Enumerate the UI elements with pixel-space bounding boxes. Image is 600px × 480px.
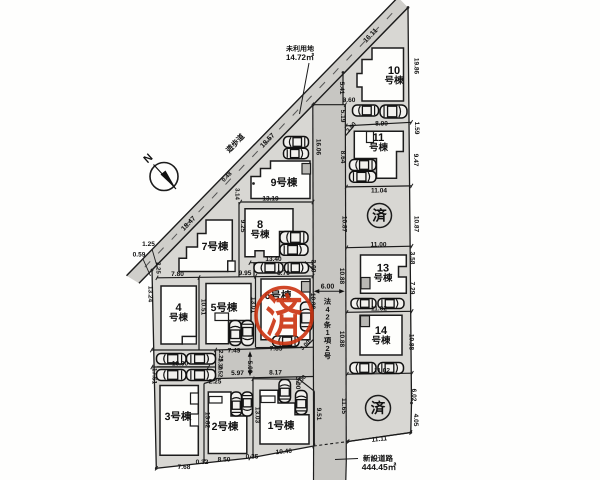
svg-text:9.95: 9.95 [239, 270, 252, 277]
svg-text:5.00: 5.00 [246, 361, 253, 374]
svg-text:10.51: 10.51 [200, 299, 207, 316]
svg-text:7.29: 7.29 [409, 282, 416, 295]
svg-text:7.68: 7.68 [178, 464, 191, 471]
svg-text:9.25: 9.25 [239, 220, 246, 233]
svg-text:1.59: 1.59 [413, 122, 420, 135]
svg-text:16.06: 16.06 [315, 139, 322, 156]
svg-text:7号棟: 7号棟 [202, 240, 229, 253]
svg-text:号棟: 号棟 [371, 335, 391, 347]
svg-text:8.90: 8.90 [375, 121, 388, 128]
svg-text:1号棟: 1号棟 [268, 419, 295, 432]
svg-text:号棟: 号棟 [373, 272, 393, 284]
svg-text:号棟: 号棟 [369, 142, 389, 154]
svg-text:13.82: 13.82 [204, 412, 211, 429]
svg-text:6.02: 6.02 [410, 389, 417, 402]
svg-text:3.00: 3.00 [310, 260, 317, 273]
svg-text:10.88: 10.88 [338, 268, 345, 285]
svg-text:2.25: 2.25 [155, 262, 162, 274]
svg-text:0.35: 0.35 [246, 454, 259, 461]
svg-text:13.40: 13.40 [265, 256, 282, 263]
svg-text:号棟: 号棟 [169, 312, 189, 324]
svg-text:9.47: 9.47 [412, 154, 419, 167]
svg-text:1.25: 1.25 [142, 241, 155, 248]
svg-text:14.72㎡: 14.72㎡ [286, 52, 314, 62]
svg-text:9号棟: 9号棟 [271, 176, 298, 189]
svg-text:13.19: 13.19 [262, 196, 279, 203]
svg-text:10.88: 10.88 [338, 331, 345, 348]
svg-text:0.32: 0.32 [196, 459, 209, 466]
svg-text:13.24: 13.24 [147, 286, 154, 303]
svg-text:11.65: 11.65 [340, 398, 347, 414]
svg-text:3号棟: 3号棟 [165, 410, 192, 423]
svg-text:済: 済 [266, 291, 304, 343]
svg-text:8.70: 8.70 [277, 270, 290, 277]
svg-text:2号棟: 2号棟 [212, 420, 239, 433]
svg-text:済: 済 [372, 208, 387, 225]
svg-text:5号棟: 5号棟 [211, 301, 238, 314]
svg-text:10.87: 10.87 [341, 216, 348, 233]
svg-text:10.88: 10.88 [408, 334, 415, 351]
svg-text:7.49: 7.49 [228, 348, 241, 355]
svg-text:10.87: 10.87 [413, 216, 420, 233]
svg-text:8.50: 8.50 [218, 457, 231, 464]
svg-text:10.40: 10.40 [275, 448, 292, 456]
svg-text:4.05: 4.05 [412, 414, 419, 427]
svg-text:444.45㎡: 444.45㎡ [362, 462, 397, 472]
svg-text:済: 済 [371, 400, 386, 417]
svg-text:0.59: 0.59 [133, 252, 146, 259]
svg-text:2.52: 2.52 [217, 366, 224, 378]
svg-text:5.41: 5.41 [338, 82, 345, 95]
svg-text:9.51: 9.51 [315, 408, 322, 421]
svg-text:号棟: 号棟 [250, 229, 270, 241]
svg-text:5.97: 5.97 [231, 370, 244, 377]
svg-text:11.02: 11.02 [374, 368, 390, 375]
svg-text:号: 号 [324, 352, 332, 361]
svg-text:13.03: 13.03 [254, 407, 261, 424]
svg-text:号棟: 号棟 [384, 75, 404, 87]
svg-text:6.00: 6.00 [321, 284, 335, 291]
svg-text:3.58: 3.58 [409, 252, 416, 265]
svg-text:8.64: 8.64 [339, 151, 346, 164]
svg-text:7.85: 7.85 [270, 346, 283, 353]
svg-text:3.60: 3.60 [343, 97, 356, 104]
svg-text:5.19: 5.19 [339, 110, 346, 123]
svg-text:11.00: 11.00 [371, 242, 387, 249]
svg-text:未利用地: 未利用地 [285, 44, 314, 53]
svg-text:17.51: 17.51 [151, 368, 158, 385]
svg-text:11.04: 11.04 [371, 188, 387, 195]
svg-text:11.02: 11.02 [371, 306, 387, 313]
svg-text:7.80: 7.80 [171, 271, 184, 278]
svg-text:3.14: 3.14 [234, 188, 241, 200]
svg-text:8.17: 8.17 [269, 369, 282, 376]
svg-text:19.86: 19.86 [413, 58, 420, 75]
svg-text:2.25: 2.25 [209, 379, 222, 386]
